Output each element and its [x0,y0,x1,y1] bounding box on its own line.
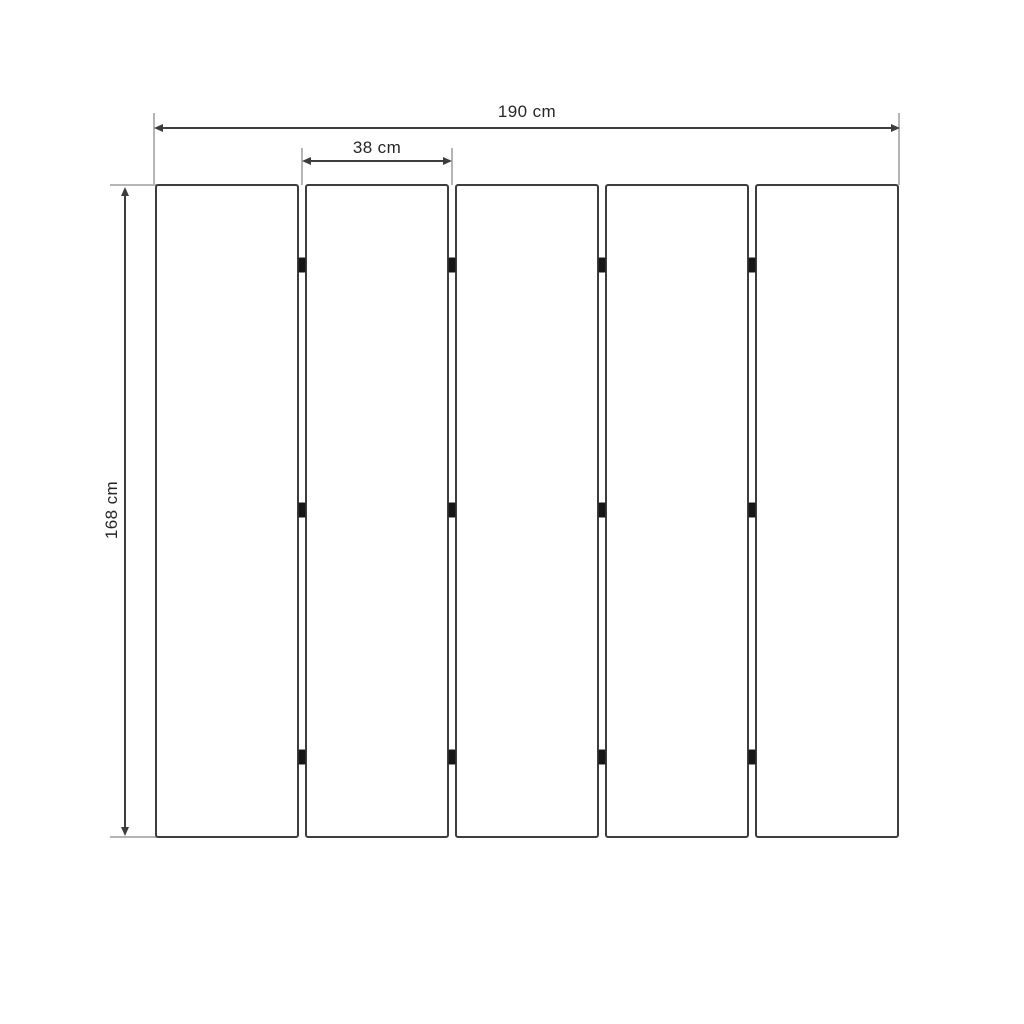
panel-width-dimension-line [304,160,450,162]
hinge-connector [599,503,606,518]
hinge-connector [749,258,756,273]
hinge-connector [299,750,306,765]
total-width-dimension-line [156,127,898,129]
hinge-connector [449,750,456,765]
hinge-connector [749,503,756,518]
extension-line [110,184,157,186]
arrow-right-icon [891,124,900,132]
dimension-drawing: 190 cm 38 cm 168 cm [0,0,1024,1024]
arrow-left-icon [154,124,163,132]
hinge-connector [599,750,606,765]
extension-line [301,148,303,185]
height-dimension-line [124,190,126,833]
hinge-connector [299,258,306,273]
panel [155,184,299,838]
hinge-connector [449,503,456,518]
arrow-right-icon [443,157,452,165]
arrow-down-icon [121,827,129,836]
arrow-left-icon [302,157,311,165]
arrow-up-icon [121,187,129,196]
panel [755,184,899,838]
extension-line [451,148,453,185]
total-width-label: 190 cm [155,102,899,122]
panel-row [155,184,899,838]
extension-line [110,836,157,838]
panel [455,184,599,838]
height-label: 168 cm [102,481,122,539]
hinge-connector [449,258,456,273]
panel [305,184,449,838]
hinge-connector [749,750,756,765]
hinge-connector [599,258,606,273]
hinge-connector [299,503,306,518]
panel [605,184,749,838]
panel-width-label: 38 cm [302,138,452,158]
